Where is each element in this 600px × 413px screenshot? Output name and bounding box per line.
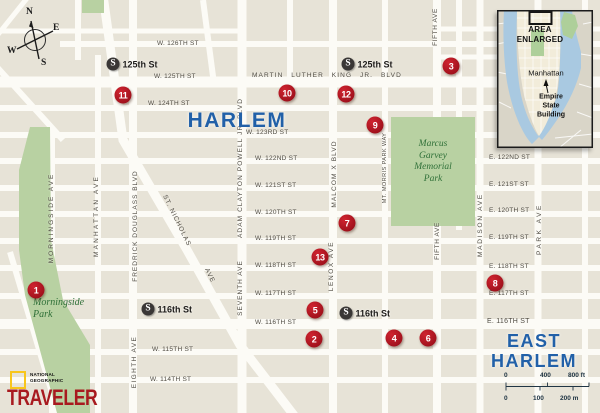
street-label: E. 121ST ST — [489, 182, 529, 189]
street-label: W. 117TH ST — [255, 291, 296, 298]
street-label: E. 120TH ST — [489, 208, 529, 215]
inset-landmark-label: Empire State Building — [537, 92, 565, 119]
compass-east-label: E — [53, 23, 59, 33]
subway-station-label: 125th St — [358, 59, 393, 69]
subway-station-label: 125th St — [123, 59, 158, 69]
scale-meters-mid: 100 — [533, 395, 544, 402]
subway-station: S125th St — [107, 58, 158, 71]
street-label-vertical: FREDRICK DOUGLASS BLVD — [133, 170, 140, 281]
compass-north-label: N — [26, 7, 33, 17]
street-label: E. 118TH ST — [489, 264, 529, 271]
street-label: W. 122ND ST — [255, 156, 297, 163]
brand-name: NATIONAL GEOGRAPHIC — [30, 372, 63, 383]
scale-meters-zero: 0 — [504, 395, 508, 402]
subway-icon: S — [340, 307, 353, 320]
subway-station: S125th St — [342, 58, 393, 71]
subway-icon: S — [342, 58, 355, 71]
harlem-street-map: W. 126TH STW. 125TH STMARTIN LUTHER KING… — [0, 0, 600, 413]
poi-marker-1: 1 — [28, 282, 45, 299]
magazine-title: TRAVELER — [7, 387, 97, 409]
street-label: E. 116TH ST — [487, 318, 530, 325]
poi-marker-7: 7 — [339, 215, 356, 232]
neighborhood-label: HARLEM — [188, 109, 287, 133]
subway-icon: S — [107, 58, 120, 71]
poi-marker-4: 4 — [386, 330, 403, 347]
street-label: MARTIN LUTHER KING JR. BLVD — [252, 73, 402, 80]
street-label-vertical: MADISON AVE — [478, 193, 485, 257]
subway-station-label: 116th St — [158, 304, 193, 314]
scale-meters-max: 200 m — [560, 395, 578, 402]
street-label: W. 119TH ST — [255, 236, 296, 243]
scale-feet-zero: 0 — [504, 372, 508, 379]
street-label: W. 126TH ST — [157, 41, 199, 48]
poi-marker-8: 8 — [487, 275, 504, 292]
poi-marker-9: 9 — [367, 117, 384, 134]
street-label: W. 120TH ST — [255, 210, 297, 217]
park-label: Morningside Park — [33, 297, 84, 321]
poi-marker-10: 10 — [279, 85, 296, 102]
street-label: W. 121ST ST — [255, 183, 296, 190]
brand-logo: NATIONAL GEOGRAPHIC TRAVELER — [6, 366, 116, 413]
subway-icon: S — [142, 303, 155, 316]
street-label-vertical: SEVENTH AVE — [238, 260, 245, 316]
street-label: E. 122ND ST — [489, 155, 530, 162]
street-label: W. 114TH ST — [150, 377, 191, 384]
scale-feet-max: 800 ft — [568, 372, 585, 379]
street-label-vertical: FIFTH AVE — [435, 222, 442, 260]
street-label: W. 118TH ST — [255, 263, 296, 270]
neighborhood-label: EAST HARLEM — [491, 331, 577, 371]
poi-marker-13: 13 — [312, 249, 329, 266]
street-label-vertical: AVE — [203, 268, 216, 285]
street-label-vertical: MALCOM X BLVD — [332, 140, 339, 207]
scale-bar-graphic — [502, 381, 594, 393]
compass-west-label: W — [7, 46, 17, 56]
street-label: W. 116TH ST — [255, 320, 296, 327]
street-label: E. 117TH ST — [489, 291, 529, 298]
street-label-vertical: MORNINGSIDE AVE — [49, 173, 56, 264]
street-label-vertical: EIGHTH AVE — [132, 336, 139, 389]
poi-marker-11: 11 — [115, 87, 132, 104]
street-label: E. 119TH ST — [489, 235, 529, 242]
street-label: W. 115TH ST — [152, 347, 193, 354]
park-label: Marcus Garvey Memorial Park — [414, 139, 451, 185]
street-label-vertical: ST. NICHOLAS — [161, 194, 192, 248]
street-label-vertical: MANHATTAN AVE — [94, 175, 101, 257]
inset-island-label: Manhattan — [528, 69, 563, 78]
compass-south-label: S — [41, 58, 46, 68]
street-label-vertical: FIFTH AVE — [433, 8, 440, 46]
poi-marker-6: 6 — [420, 330, 437, 347]
subway-station: S116th St — [340, 307, 391, 320]
compass-graphic — [6, 4, 68, 74]
street-label: W. 124TH ST — [148, 101, 190, 108]
street-label-vertical: LENOX AVE — [329, 241, 336, 291]
poi-marker-2: 2 — [306, 331, 323, 348]
poi-marker-3: 3 — [443, 58, 460, 75]
poi-marker-5: 5 — [307, 302, 324, 319]
subway-station: S116th St — [142, 303, 193, 316]
subway-station-label: 116th St — [356, 308, 391, 318]
street-label-vertical: PARK AVE — [537, 203, 544, 255]
scale-bar: 0 400 800 ft 0 100 200 m — [502, 372, 594, 410]
street-label: W. 125TH ST — [154, 74, 196, 81]
compass-rose: N E S W — [6, 4, 68, 74]
street-label-vertical: MT. MORRIS PARK WAY — [383, 133, 389, 204]
inset-caption: AREA ENLARGED — [517, 25, 564, 45]
scale-feet-mid: 400 — [540, 372, 551, 379]
poi-marker-12: 12 — [338, 86, 355, 103]
